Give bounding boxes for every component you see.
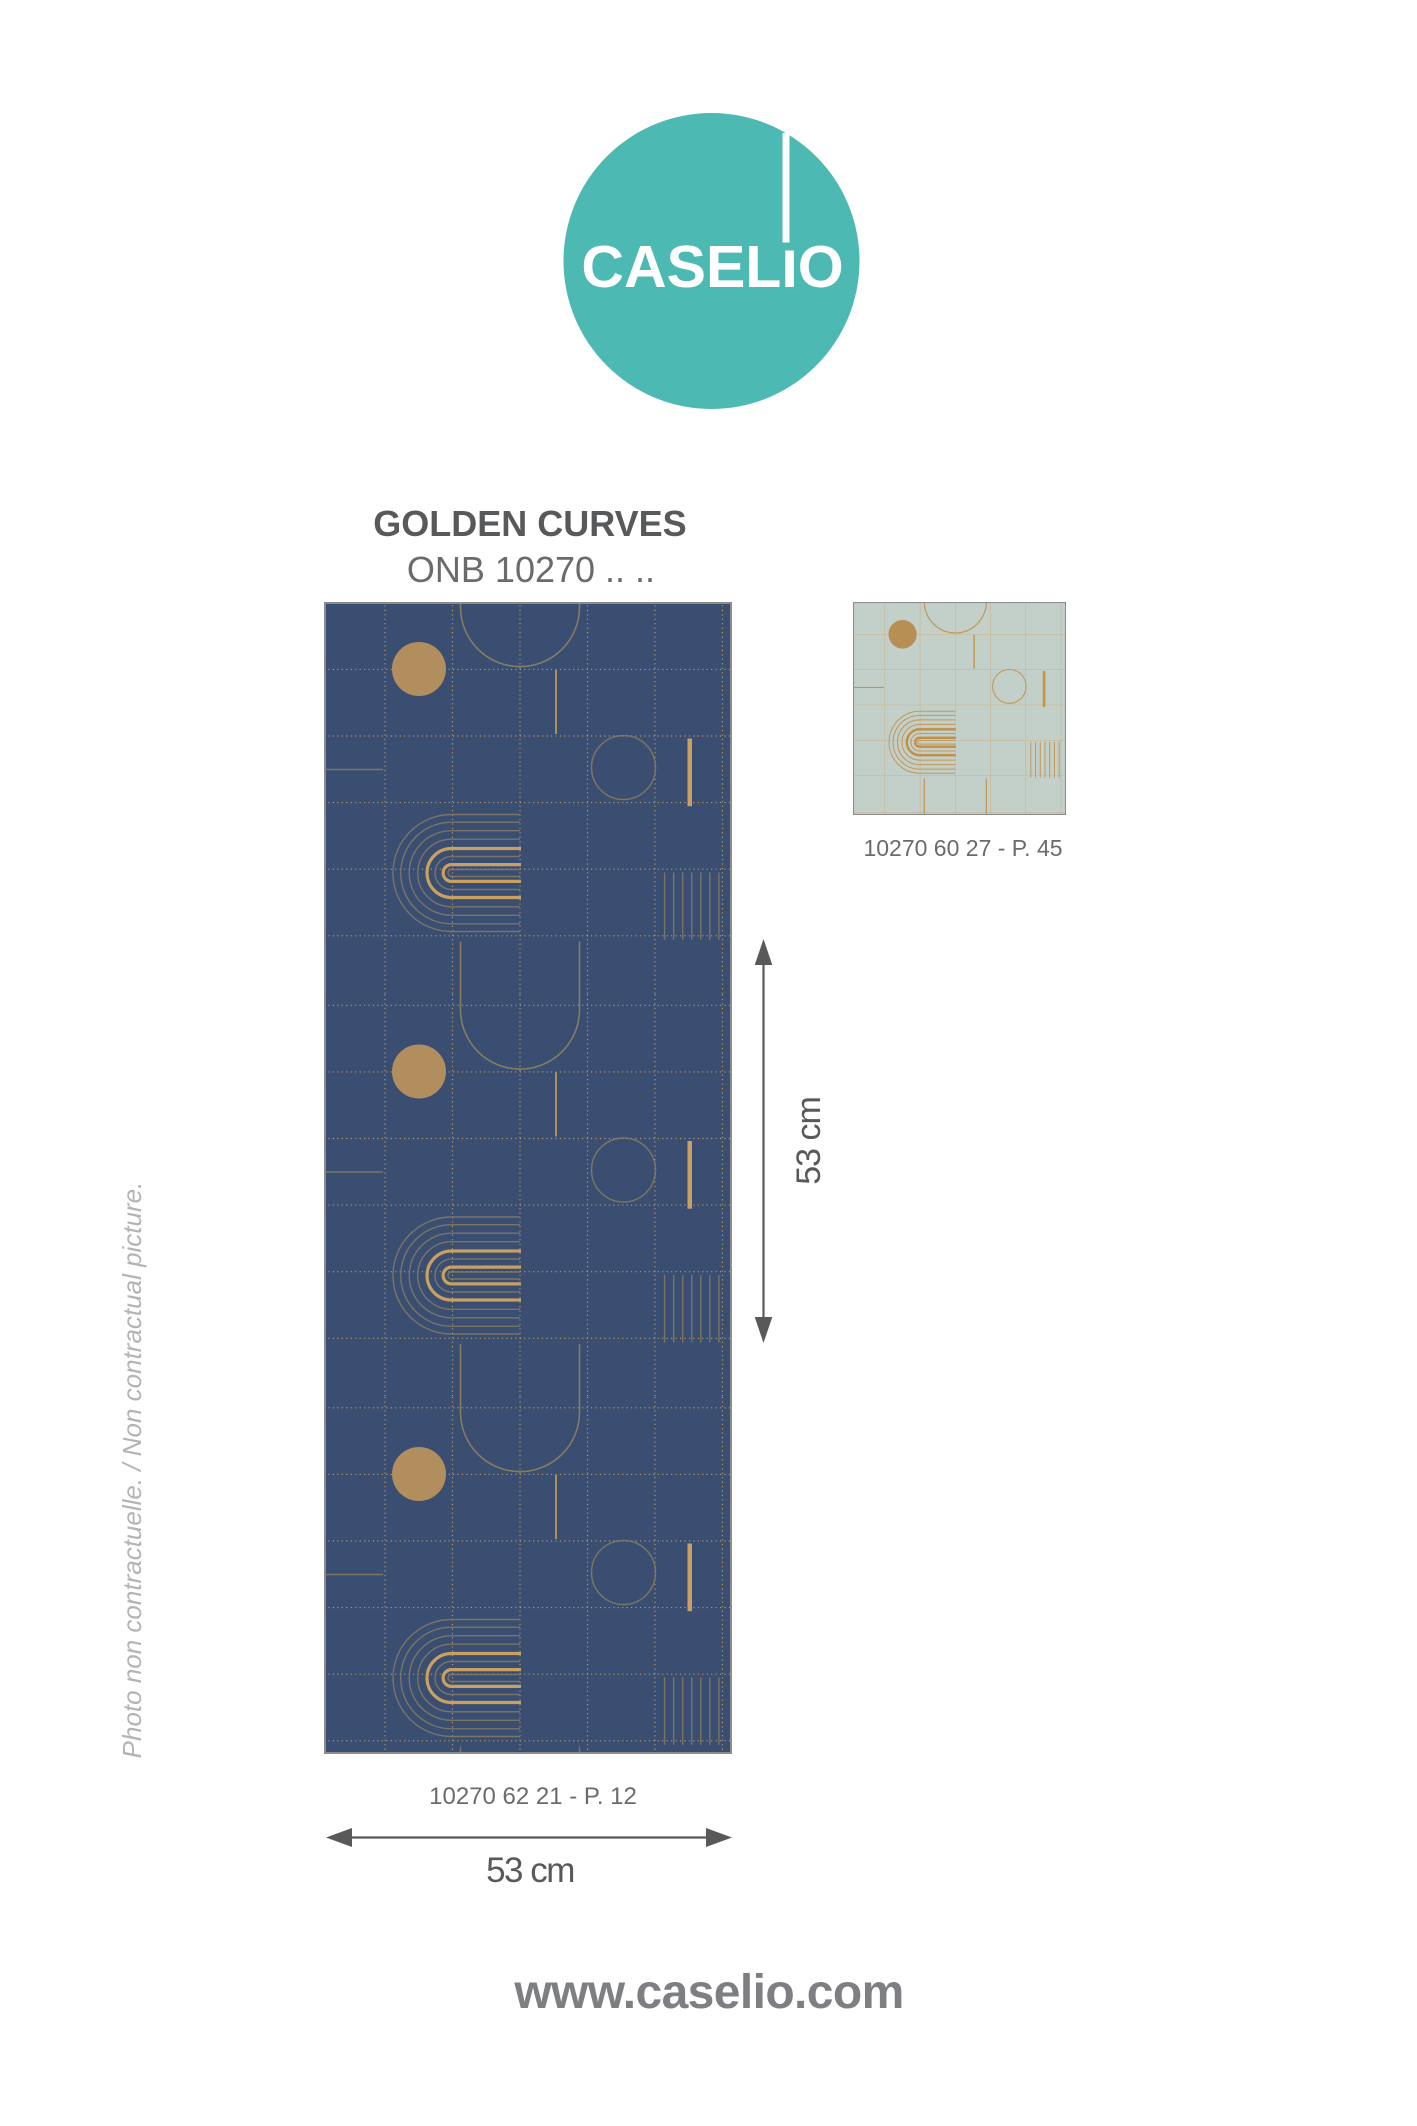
- svg-text:CASELIO: CASELIO: [581, 234, 843, 300]
